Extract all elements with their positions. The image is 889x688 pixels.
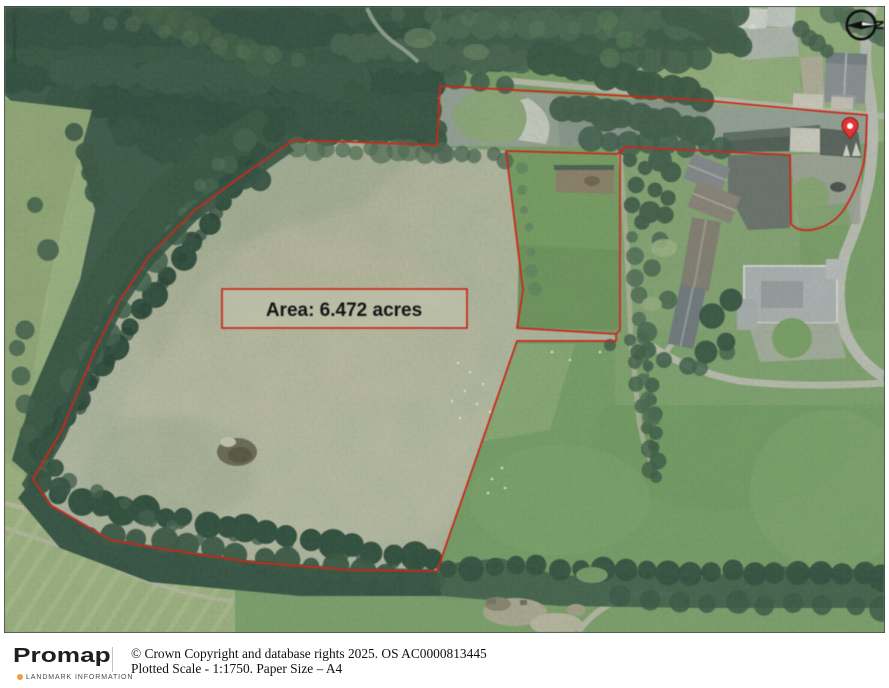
svg-text:N: N [871, 20, 884, 30]
svg-text:Area: 6.472 acres: Area: 6.472 acres [266, 300, 422, 321]
svg-text:Getmapping plc 2025: Getmapping plc 2025 [12, 14, 18, 62]
